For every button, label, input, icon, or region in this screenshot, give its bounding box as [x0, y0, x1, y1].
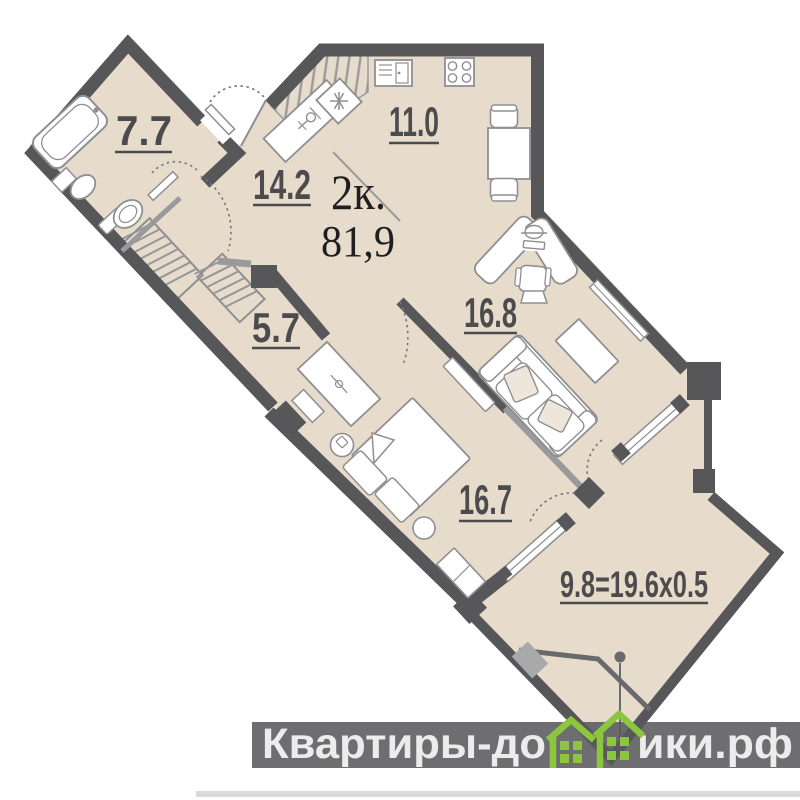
svg-text:Квартиры-до: Квартиры-до [262, 720, 546, 768]
svg-text:5.7: 5.7 [252, 304, 300, 351]
svg-text:11.0: 11.0 [389, 98, 439, 145]
svg-text:ики.рф: ики.рф [637, 720, 793, 768]
svg-text:81,9: 81,9 [321, 217, 395, 266]
svg-text:16.8: 16.8 [464, 289, 517, 336]
svg-text:14.2: 14.2 [253, 161, 311, 208]
svg-text:2к.: 2к. [331, 164, 386, 220]
svg-text:16.7: 16.7 [459, 476, 512, 523]
svg-text:7.7: 7.7 [116, 107, 172, 154]
svg-text:9.8=19.6x0.5: 9.8=19.6x0.5 [560, 564, 708, 605]
